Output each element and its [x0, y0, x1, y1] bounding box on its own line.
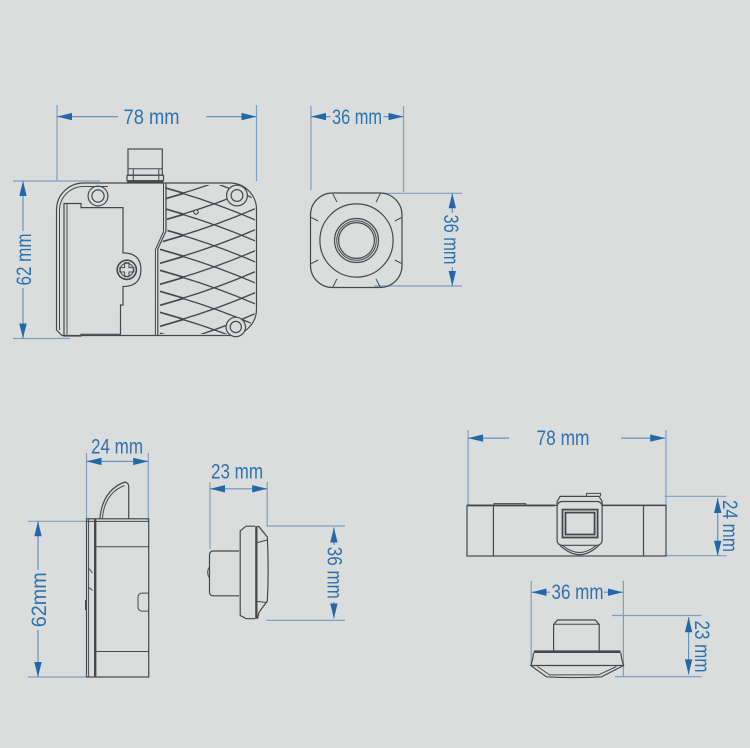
- svg-text:24 mm: 24 mm: [91, 436, 143, 459]
- svg-text:36 mm: 36 mm: [332, 106, 382, 129]
- svg-text:23 mm: 23 mm: [211, 461, 263, 484]
- svg-text:62mm: 62mm: [28, 572, 51, 627]
- svg-text:36 mm: 36 mm: [552, 581, 604, 604]
- svg-text:23 mm: 23 mm: [690, 621, 713, 673]
- svg-text:62 mm: 62 mm: [13, 234, 36, 286]
- svg-text:36 mm: 36 mm: [322, 547, 345, 599]
- svg-text:24 mm: 24 mm: [718, 500, 741, 552]
- svg-text:78 mm: 78 mm: [124, 106, 180, 129]
- svg-text:78 mm: 78 mm: [537, 427, 590, 450]
- svg-text:36 mm: 36 mm: [439, 215, 462, 265]
